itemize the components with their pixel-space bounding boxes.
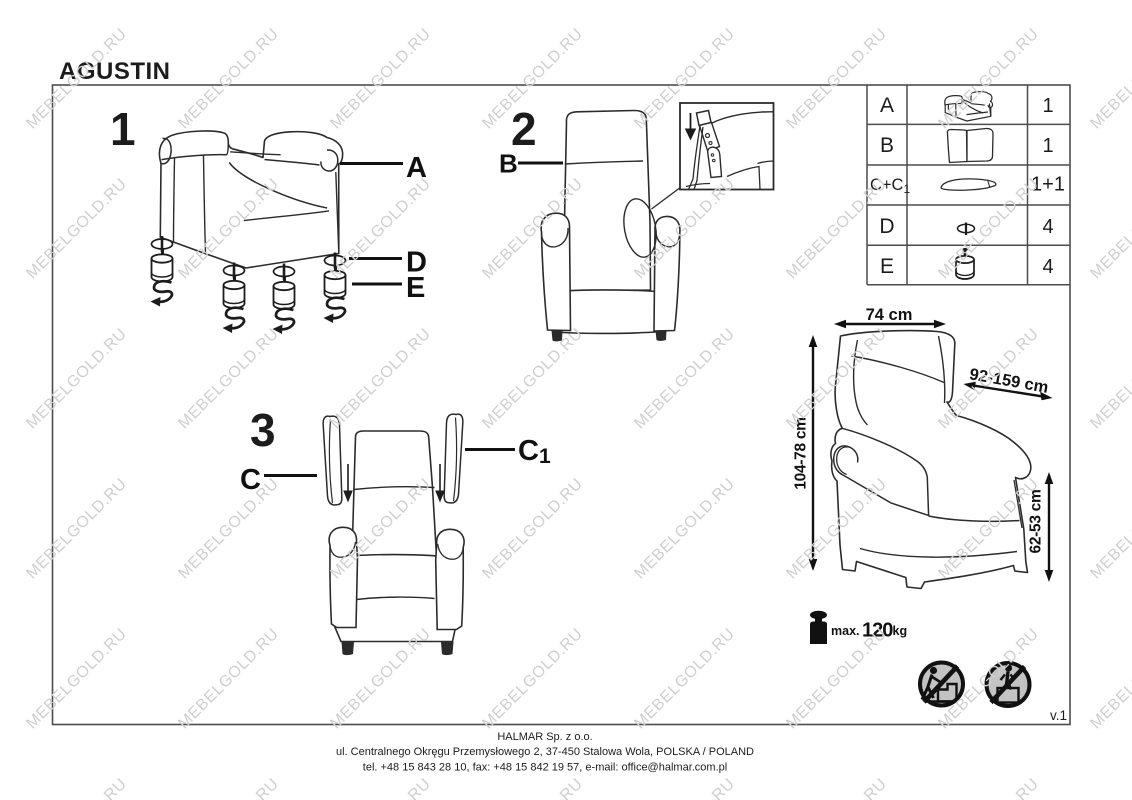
svg-text:MEBELGOLD.RU: MEBELGOLD.RU [175,625,282,732]
svg-text:tel. +48 15 843 28 10, fax: +4: tel. +48 15 843 28 10, fax: +48 15 842 1… [363,762,727,774]
svg-text:4: 4 [1042,256,1053,278]
svg-text:B: B [880,134,894,157]
svg-text:MEBELGOLD.RU: MEBELGOLD.RU [479,625,586,732]
svg-text:v.1: v.1 [1050,708,1067,723]
svg-text:C1: C1 [518,435,551,468]
svg-text:E: E [406,272,425,304]
svg-text:3: 3 [250,404,276,456]
svg-text:MEBELGOLD.RU: MEBELGOLD.RU [1087,625,1132,732]
svg-text:MEBELGOLD.RU: MEBELGOLD.RU [935,775,1042,800]
svg-text:MEBELGOLD.RU: MEBELGOLD.RU [327,325,434,432]
svg-text:MEBELGOLD.RU: MEBELGOLD.RU [783,625,890,732]
svg-text:ul. Centralnego Okręgu Przemys: ul. Centralnego Okręgu Przemysłowego 2, … [336,746,754,758]
svg-text:4: 4 [1042,216,1053,238]
svg-text:1: 1 [1042,95,1053,117]
svg-text:MEBELGOLD.RU: MEBELGOLD.RU [783,175,890,282]
svg-text:MEBELGOLD.RU: MEBELGOLD.RU [175,775,282,800]
svg-text:A: A [880,94,894,117]
svg-text:MEBELGOLD.RU: MEBELGOLD.RU [479,475,586,582]
svg-text:MEBELGOLD.RU: MEBELGOLD.RU [1087,175,1132,282]
svg-text:MEBELGOLD.RU: MEBELGOLD.RU [1087,325,1132,432]
svg-text:MEBELGOLD.RU: MEBELGOLD.RU [479,325,586,432]
svg-text:MEBELGOLD.RU: MEBELGOLD.RU [175,25,282,132]
svg-text:E: E [880,255,894,278]
svg-text:MEBELGOLD.RU: MEBELGOLD.RU [631,775,738,800]
svg-text:max.: max. [831,624,860,638]
svg-text:HALMAR Sp. z o.o.: HALMAR Sp. z o.o. [497,731,592,743]
svg-text:kg: kg [893,624,908,638]
svg-text:D: D [879,215,894,238]
svg-text:MEBELGOLD.RU: MEBELGOLD.RU [783,25,890,132]
svg-text:MEBELGOLD.RU: MEBELGOLD.RU [631,625,738,732]
svg-text:MEBELGOLD.RU: MEBELGOLD.RU [631,475,738,582]
svg-text:74 cm: 74 cm [866,306,913,324]
svg-text:MEBELGOLD.RU: MEBELGOLD.RU [23,175,130,282]
svg-text:MEBELGOLD.RU: MEBELGOLD.RU [23,775,130,800]
svg-text:MEBELGOLD.RU: MEBELGOLD.RU [631,325,738,432]
svg-text:1: 1 [110,103,136,155]
svg-text:MEBELGOLD.RU: MEBELGOLD.RU [23,475,130,582]
svg-text:B: B [499,149,518,179]
svg-text:MEBELGOLD.RU: MEBELGOLD.RU [783,775,890,800]
svg-text:MEBELGOLD.RU: MEBELGOLD.RU [23,625,130,732]
svg-text:MEBELGOLD.RU: MEBELGOLD.RU [23,325,130,432]
svg-text:MEBELGOLD.RU: MEBELGOLD.RU [1087,25,1132,132]
svg-text:MEBELGOLD.RU: MEBELGOLD.RU [1087,475,1132,582]
svg-text:2: 2 [511,103,537,155]
svg-text:MEBELGOLD.RU: MEBELGOLD.RU [327,25,434,132]
svg-text:MEBELGOLD.RU: MEBELGOLD.RU [479,775,586,800]
svg-text:MEBELGOLD.RU: MEBELGOLD.RU [175,475,282,582]
svg-text:MEBELGOLD.RU: MEBELGOLD.RU [327,775,434,800]
svg-text:1: 1 [1042,135,1053,157]
svg-text:MEBELGOLD.RU: MEBELGOLD.RU [1087,775,1132,800]
svg-text:MEBELGOLD.RU: MEBELGOLD.RU [935,175,1042,282]
